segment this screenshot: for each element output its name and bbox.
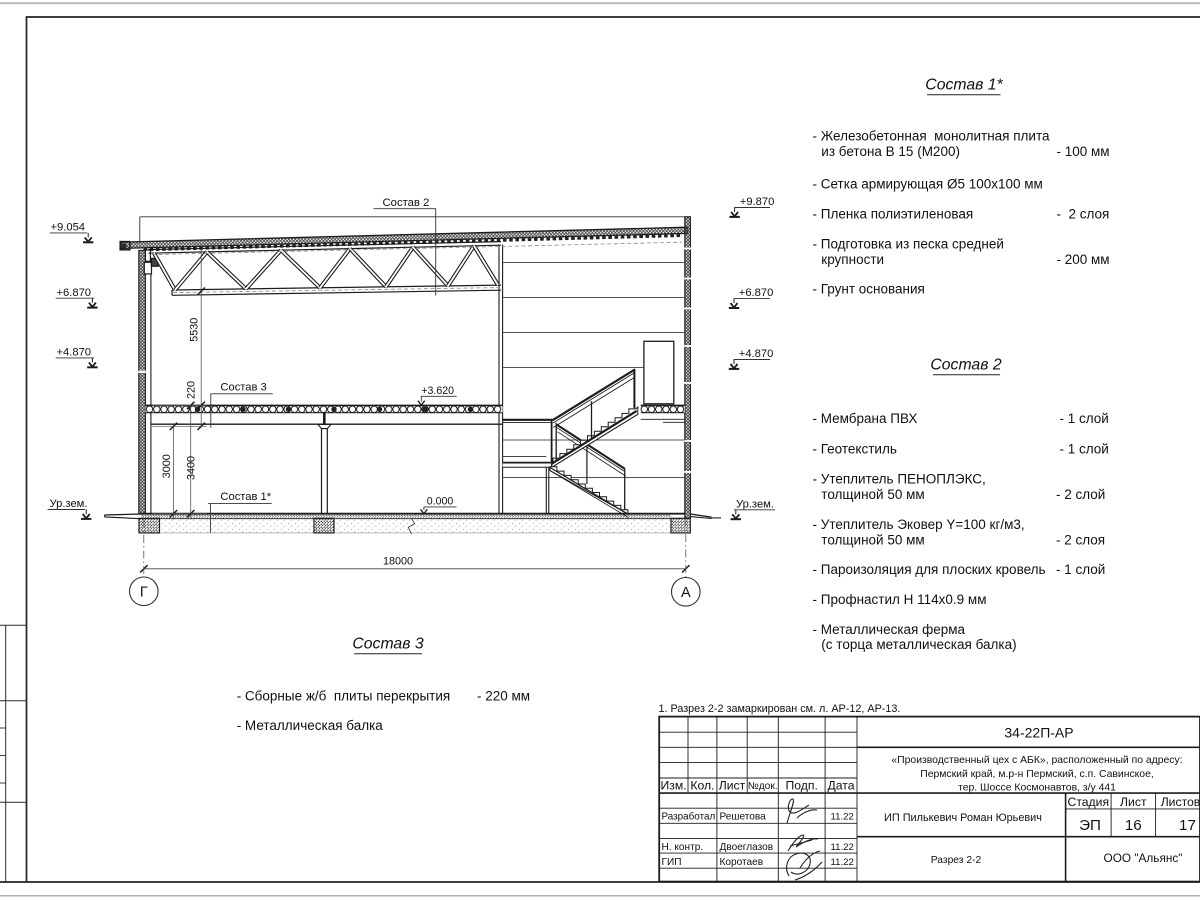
svg-text:220: 220 (186, 381, 198, 399)
svg-text:- 100 мм: - 100 мм (1057, 144, 1110, 159)
svg-text:+4.870: +4.870 (739, 348, 774, 360)
svg-text:Пермский край, м.р-н Пермский,: Пермский край, м.р-н Пермский, с.п. Сави… (920, 769, 1154, 780)
svg-text:Изм.: Изм. (661, 778, 687, 792)
svg-text:Г: Г (140, 585, 148, 601)
svg-text:- 1 слой: - 1 слой (1060, 441, 1109, 456)
svg-text:- Сборные ж/б плиты перекрыти: - Сборные ж/б плиты перекрытия (237, 689, 451, 704)
svg-text:- Металлическая ферма: - Металлическая ферма (813, 622, 966, 637)
svg-text:3000: 3000 (161, 454, 173, 478)
svg-text:18000: 18000 (383, 555, 413, 567)
svg-text:Ур.зем.: Ур.зем. (50, 498, 88, 510)
svg-text:ЭП: ЭП (1079, 817, 1101, 834)
svg-text:Н. контр.: Н. контр. (662, 842, 704, 853)
svg-text:- Металлическая балка: - Металлическая балка (237, 718, 384, 733)
svg-text:34-22П-АР: 34-22П-АР (1004, 725, 1073, 741)
svg-text:0.000: 0.000 (427, 495, 454, 507)
svg-text:- 220 мм: - 220 мм (477, 689, 530, 704)
svg-text:+4.870: +4.870 (57, 347, 92, 359)
svg-text:ИП Пилькевич Роман Юрьевич: ИП Пилькевич Роман Юрьевич (884, 812, 1042, 824)
svg-text:11.22: 11.22 (831, 842, 854, 853)
svg-text:+9.054: +9.054 (51, 222, 86, 234)
svg-text:Состав 3: Состав 3 (352, 636, 423, 653)
svg-text:Лист: Лист (719, 778, 746, 792)
svg-text:- 2 слоя: - 2 слоя (1056, 532, 1105, 547)
svg-text:Листов: Листов (1161, 795, 1200, 809)
svg-text:- 2 слой: - 2 слой (1056, 487, 1105, 502)
svg-text:толщиной 50 мм: толщиной 50 мм (821, 532, 924, 547)
svg-text:Подп.: Подп. (786, 778, 818, 792)
svg-text:- Пленка полиэтиленовая: - Пленка полиэтиленовая (813, 206, 974, 221)
svg-text:- Утеплитель Эковер Y=100 кг/м: - Утеплитель Эковер Y=100 кг/м3, (813, 517, 1025, 532)
svg-text:(с торца металлическая балка): (с торца металлическая балка) (821, 637, 1016, 652)
svg-text:16: 16 (1125, 817, 1142, 834)
svg-text:Решетова: Решетова (720, 812, 767, 823)
svg-text:Кол.: Кол. (690, 778, 714, 792)
svg-text:ГИП: ГИП (662, 857, 682, 868)
svg-text:- Профнастил Н 114х0.9 мм: - Профнастил Н 114х0.9 мм (813, 592, 987, 607)
svg-text:ООО "Альянс": ООО "Альянс" (1104, 851, 1183, 865)
svg-text:3400: 3400 (186, 456, 198, 480)
svg-text:Состав 2: Состав 2 (930, 357, 1001, 374)
svg-text:1. Разрез 2-2 замаркирован см.: 1. Разрез 2-2 замаркирован см. л. АР-12,… (659, 703, 901, 715)
svg-text:Ур.зем.: Ур.зем. (736, 498, 774, 510)
svg-text:17: 17 (1179, 817, 1196, 834)
svg-text:- Утеплитель ПЕНОПЛЭКС,: - Утеплитель ПЕНОПЛЭКС, (813, 471, 986, 486)
svg-text:- Геотекстиль: - Геотекстиль (813, 441, 897, 456)
svg-text:Стадия: Стадия (1068, 795, 1110, 809)
svg-text:- 2 слоя: - 2 слоя (1057, 206, 1110, 221)
svg-text:Состав 1*: Состав 1* (220, 491, 271, 503)
svg-text:Состав 1*: Состав 1* (925, 77, 1003, 94)
svg-text:Состав 3: Состав 3 (220, 381, 266, 393)
svg-text:11.22: 11.22 (831, 811, 854, 822)
svg-text:Дата: Дата (828, 778, 855, 792)
svg-text:- Пароизоляция для плоских кро: - Пароизоляция для плоских кровель (813, 562, 1046, 577)
svg-text:- Грунт основания: - Грунт основания (813, 281, 925, 296)
svg-text:Разрез 2-2: Разрез 2-2 (931, 855, 982, 866)
svg-text:Коротаев: Коротаев (720, 857, 764, 868)
svg-text:+3.620: +3.620 (421, 385, 454, 397)
svg-text:Состав 2: Состав 2 (383, 197, 430, 209)
svg-text:+6.870: +6.870 (739, 287, 774, 299)
svg-text:крупности: крупности (821, 252, 884, 267)
svg-text:+9.870: +9.870 (740, 196, 775, 208)
svg-text:+6.870: +6.870 (57, 287, 92, 299)
svg-text:- Подготовка из песка средней: - Подготовка из песка средней (813, 236, 1004, 251)
svg-text:5530: 5530 (189, 318, 201, 342)
svg-text:из бетона В 15 (М200): из бетона В 15 (М200) (821, 144, 960, 159)
svg-text:толщиной 50 мм: толщиной 50 мм (821, 487, 924, 502)
svg-text:«Производственный цех с АБК»,: «Производственный цех с АБК», расположен… (891, 755, 1182, 766)
svg-text:11.22: 11.22 (831, 857, 854, 868)
svg-text:Лист: Лист (1120, 795, 1147, 809)
svg-text:- Сетка армирующая Ø5 100х100: - Сетка армирующая Ø5 100х100 мм (813, 176, 1043, 191)
svg-text:№док.: №док. (748, 781, 778, 792)
svg-text:- Мембрана ПВХ: - Мембрана ПВХ (813, 411, 918, 426)
svg-text:А: А (681, 585, 691, 601)
svg-text:- 1 слой: - 1 слой (1060, 411, 1109, 426)
svg-text:- 200 мм: - 200 мм (1057, 252, 1110, 267)
svg-text:Разработал: Разработал (662, 812, 716, 823)
svg-text:Двоеглазов: Двоеглазов (720, 842, 774, 853)
svg-text:тер. Шоссе Космонавтов, з/у 44: тер. Шоссе Космонавтов, з/у 441 (958, 783, 1116, 794)
svg-text:- 1 слой: - 1 слой (1056, 562, 1105, 577)
svg-text:- Железобетонная монолитная п: - Железобетонная монолитная плита (813, 128, 1050, 143)
